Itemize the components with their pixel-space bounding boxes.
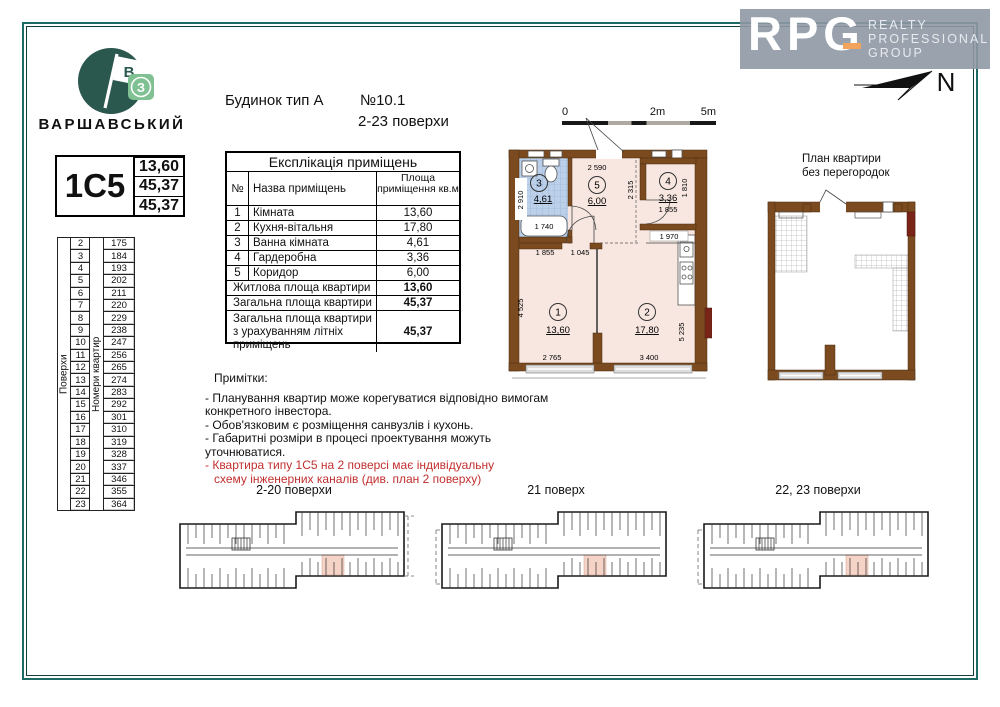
col-num-header: №	[227, 172, 249, 205]
floor-cell: 22	[71, 486, 90, 498]
notes: Примітки: - Планування квартир може коре…	[205, 372, 550, 486]
explication-rows: 1 Кімната 13,60 2 Кухня-вітальня 17,80 3…	[227, 206, 459, 281]
floor-cell: 14	[71, 387, 90, 399]
open-plan-door-opening	[820, 201, 846, 213]
kitchen-counter	[678, 235, 695, 305]
svg-text:2 315: 2 315	[626, 181, 635, 200]
apartment-number-cell: 364	[104, 499, 134, 510]
total-with-summer-value: 45,37	[377, 311, 459, 352]
total-overall-value: 45,37	[377, 296, 459, 310]
explication-row: 5 Коридор 6,00	[227, 266, 459, 281]
brand-name: ВАРШАВСЬКИЙ	[34, 116, 190, 133]
room-name: Ванна кімната	[249, 236, 377, 250]
keyplan-floor-21	[434, 500, 678, 596]
sink-icon	[680, 242, 693, 257]
keyplan-label-1: 2-20 поверхи	[172, 483, 416, 497]
explication-row: 3 Ванна кімната 4,61	[227, 236, 459, 251]
floor-cell: 7	[71, 300, 90, 312]
svg-text:1: 1	[555, 308, 561, 319]
total-living-value: 13,60	[377, 281, 459, 295]
keyplan-label-2: 21 поверх	[434, 483, 678, 497]
room-number: 4	[227, 251, 249, 265]
apartment-number-cell: 319	[104, 437, 134, 449]
apartment-number-cell: 229	[104, 312, 134, 324]
floor-cell: 17	[71, 424, 90, 436]
bottom-stub-wall	[825, 345, 835, 375]
open-plan	[766, 150, 926, 385]
keyplan-label-3: 22, 23 поверхи	[696, 483, 940, 497]
floor-cell: 16	[71, 412, 90, 424]
apartment-number-cell: 211	[104, 288, 134, 300]
room-number: 3	[227, 236, 249, 250]
building-type: Будинок тип А	[225, 92, 324, 109]
svg-text:4: 4	[665, 177, 671, 188]
floors-label: Поверхи	[58, 238, 70, 510]
total-overall-label: Загальна площа квартири	[227, 296, 377, 310]
total-with-summer: Загальна площа квартири з урахуванням лі…	[227, 311, 459, 342]
explication-table: Експлікація приміщень № Назва приміщень …	[225, 151, 461, 344]
floors-range: 2-23 поверхи	[358, 113, 449, 130]
floor-cell: 13	[71, 374, 90, 386]
apartment-number-cell: 247	[104, 337, 134, 349]
keyplan-continuation-dashed	[698, 530, 704, 584]
col-area-header: Площа приміщення кв.м	[377, 172, 459, 205]
apartment-number-cell: 220	[104, 300, 134, 312]
floor-cell: 18	[71, 437, 90, 449]
room-number: 1	[227, 206, 249, 220]
svg-text:1 855: 1 855	[536, 248, 555, 257]
apartment-number-cell: 283	[104, 387, 134, 399]
svg-text:2 765: 2 765	[543, 353, 562, 362]
floor-cell: 19	[71, 449, 90, 461]
total-living-label: Житлова площа квартири	[227, 281, 377, 295]
rpg-words: REALTYPROFESSIONALGROUP	[868, 18, 989, 60]
apartment-number-cell: 274	[104, 374, 134, 386]
entrance-door-swing	[586, 118, 624, 152]
room-number: 5	[227, 266, 249, 280]
floors-table: Поверхи 23456789101112131415161718192021…	[57, 237, 91, 511]
apartment-number-cell: 202	[104, 275, 134, 287]
svg-text:13,60: 13,60	[546, 325, 570, 336]
notes-list: - Планування квартир може корегуватися в…	[205, 392, 550, 460]
room-area: 17,80	[377, 221, 459, 235]
keyplan-continuation-dashed	[404, 516, 414, 576]
floor-cell: 10	[71, 337, 90, 349]
total-with-summer-label: Загальна площа квартири з урахуванням лі…	[227, 311, 377, 352]
total-living: Житлова площа квартири 13,60	[227, 281, 459, 296]
svg-text:1 855: 1 855	[659, 205, 678, 214]
svg-text:5 235: 5 235	[677, 323, 686, 342]
room-name: Коридор	[249, 266, 377, 280]
svg-text:5: 5	[594, 181, 600, 192]
apartment-number-cell: 355	[104, 486, 134, 498]
rpg-word: PROFESSIONAL	[868, 32, 989, 46]
explication-row: 1 Кімната 13,60	[227, 206, 459, 221]
room-partition	[593, 333, 602, 363]
svg-text:2 910: 2 910	[516, 191, 525, 210]
room-area: 3,36	[377, 251, 459, 265]
svg-text:17,80: 17,80	[635, 325, 659, 336]
apartment-code: 1С5	[57, 157, 133, 215]
room-area: 6,00	[377, 266, 459, 280]
floor-cell: 15	[71, 399, 90, 411]
north-label: N	[937, 67, 956, 97]
floor-cell: 21	[71, 474, 90, 486]
apartment-number-cell: 265	[104, 362, 134, 374]
col-name-header: Назва приміщень	[249, 172, 377, 205]
explication-header: № Назва приміщень Площа приміщення кв.м	[227, 172, 459, 206]
badge-letter: З	[137, 80, 145, 95]
apartment-number-cell: 256	[104, 350, 134, 362]
keyplan-continuation-dashed	[436, 530, 442, 584]
floor-cell: 4	[71, 263, 90, 275]
apartment-number-cell: 310	[104, 424, 134, 436]
plan-number: №10.1	[360, 92, 405, 109]
floors-cells: 234567891011121314151617181920212223	[70, 238, 90, 510]
entrance-opening	[596, 149, 622, 159]
washer-icon	[522, 161, 537, 176]
total-overall: Загальна площа квартири 45,37	[227, 296, 459, 311]
plan-sheet: В З ВАРШАВСЬКИЙ Будинок тип А №10.1 2-23…	[0, 0, 1000, 707]
floor-cell: 20	[71, 461, 90, 473]
apartment-area-value: 13,60	[135, 157, 183, 176]
note-item: - Планування квартир може корегуватися в…	[205, 392, 550, 419]
svg-text:2 590: 2 590	[588, 163, 607, 172]
explication-row: 4 Гардеробна 3,36	[227, 251, 459, 266]
apartment-number-cell: 193	[104, 263, 134, 275]
svg-text:1 810: 1 810	[680, 179, 689, 198]
svg-text:6,00: 6,00	[588, 196, 607, 207]
apartment-area-value: 45,37	[135, 196, 183, 215]
floor-cell: 23	[71, 499, 90, 510]
apartment-number-cell: 337	[104, 461, 134, 473]
svg-text:4,61: 4,61	[534, 194, 553, 205]
balcony-pier	[705, 308, 712, 338]
main-floor-plan: 3 4,61 5 6,00 4 3,36 1 13,60 2 17,80 2 5…	[506, 112, 712, 387]
svg-text:4 525: 4 525	[516, 299, 525, 318]
toilet-icon	[543, 159, 559, 166]
note-item: - Обов'язковим є розміщення санвузлів і …	[205, 419, 550, 433]
notes-red: - Квартира типу 1С5 на 2 поверсі має інд…	[205, 459, 550, 486]
apartment-number-cell: 346	[104, 474, 134, 486]
notes-title: Примітки:	[214, 372, 550, 386]
note-item: - Габаритні розміри в процесі проектуван…	[205, 432, 550, 459]
apartment-number-cell: 175	[104, 238, 134, 250]
apartment-number-cell: 301	[104, 412, 134, 424]
apartment-number-cell: 184	[104, 250, 134, 262]
keyplan-floors-22-23	[696, 500, 940, 596]
svg-text:2: 2	[644, 308, 650, 319]
floor-cell: 2	[71, 238, 90, 250]
apartment-number-cells: 1751841932022112202292382472562652742832…	[103, 238, 134, 510]
apartment-code-box: 1С5 13,6045,3745,37	[55, 155, 185, 217]
svg-text:3 400: 3 400	[640, 353, 659, 362]
apartment-number-cell: 292	[104, 399, 134, 411]
compass: N	[852, 58, 962, 102]
apartment-area-value: 45,37	[135, 176, 183, 195]
apartment-number-cell: 328	[104, 449, 134, 461]
apartment-areas: 13,6045,3745,37	[133, 157, 183, 215]
svg-text:1 970: 1 970	[660, 232, 679, 241]
room-area: 4,61	[377, 236, 459, 250]
room-name: Гардеробна	[249, 251, 377, 265]
rpg-letters: RPG	[748, 6, 865, 61]
explication-row: 2 Кухня-вітальня 17,80	[227, 221, 459, 236]
room-name: Кімната	[249, 206, 377, 220]
floor-cell: 5	[71, 275, 90, 287]
apartment-numbers-table: Номери квартир 1751841932022112202292382…	[89, 237, 135, 511]
floor-cell: 8	[71, 312, 90, 324]
floor-cell: 12	[71, 362, 90, 374]
room-name: Кухня-вітальня	[249, 221, 377, 235]
rpg-accent-bar	[843, 43, 861, 49]
note-red-line: - Квартира типу 1С5 на 2 поверсі має інд…	[205, 459, 550, 473]
floor-cell: 11	[71, 350, 90, 362]
apartment-numbers-label: Номери квартир	[90, 238, 103, 510]
svg-text:3: 3	[536, 179, 542, 190]
svg-text:3,36: 3,36	[659, 193, 678, 204]
floor-cell: 3	[71, 250, 90, 262]
apartment-number-cell: 238	[104, 325, 134, 337]
explication-title: Експлікація приміщень	[227, 153, 459, 172]
svg-text:1 740: 1 740	[535, 222, 554, 231]
room-number: 2	[227, 221, 249, 235]
room-area: 13,60	[377, 206, 459, 220]
svg-text:1 045: 1 045	[571, 248, 590, 257]
rpg-word: REALTY	[868, 18, 989, 32]
floor-cell: 6	[71, 288, 90, 300]
stove-icon	[680, 262, 693, 284]
floor-cell: 9	[71, 325, 90, 337]
keyplan-floors-2-20	[172, 500, 416, 596]
